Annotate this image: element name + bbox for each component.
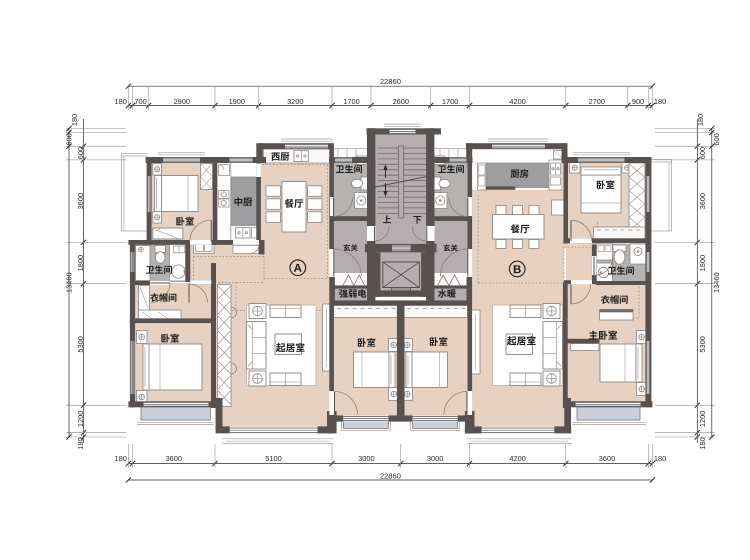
svg-text:5100: 5100 bbox=[265, 454, 281, 463]
svg-text:180: 180 bbox=[115, 97, 127, 106]
svg-text:600: 600 bbox=[76, 147, 85, 159]
svg-text:180: 180 bbox=[115, 454, 127, 463]
svg-text:180: 180 bbox=[654, 97, 666, 106]
svg-text:180: 180 bbox=[654, 454, 666, 463]
svg-text:180: 180 bbox=[696, 114, 705, 126]
svg-text:1900: 1900 bbox=[229, 97, 245, 106]
svg-text:22860: 22860 bbox=[380, 471, 401, 480]
svg-text:3600: 3600 bbox=[698, 193, 707, 209]
svg-text:3600: 3600 bbox=[166, 454, 182, 463]
svg-text:1700: 1700 bbox=[343, 97, 359, 106]
svg-text:1200: 1200 bbox=[698, 411, 707, 427]
svg-text:3200: 3200 bbox=[287, 97, 303, 106]
svg-text:3000: 3000 bbox=[427, 454, 443, 463]
svg-text:4200: 4200 bbox=[509, 454, 525, 463]
svg-text:180: 180 bbox=[70, 114, 79, 126]
svg-text:13460: 13460 bbox=[65, 272, 74, 293]
svg-text:600: 600 bbox=[65, 133, 74, 145]
svg-text:600: 600 bbox=[698, 147, 707, 159]
svg-text:700: 700 bbox=[134, 97, 146, 106]
svg-text:2700: 2700 bbox=[589, 97, 605, 106]
svg-text:3600: 3600 bbox=[599, 454, 615, 463]
svg-text:1700: 1700 bbox=[442, 97, 458, 106]
svg-text:1200: 1200 bbox=[76, 411, 85, 427]
svg-text:1800: 1800 bbox=[698, 255, 707, 271]
svg-text:3000: 3000 bbox=[358, 454, 374, 463]
svg-text:1800: 1800 bbox=[76, 255, 85, 271]
svg-text:900: 900 bbox=[632, 97, 644, 106]
svg-text:2900: 2900 bbox=[174, 97, 190, 106]
svg-text:22860: 22860 bbox=[380, 77, 401, 86]
svg-text:600: 600 bbox=[712, 133, 721, 145]
svg-text:180: 180 bbox=[76, 437, 85, 449]
svg-text:180: 180 bbox=[698, 437, 707, 449]
svg-text:5300: 5300 bbox=[76, 336, 85, 352]
svg-text:5300: 5300 bbox=[698, 336, 707, 352]
svg-text:3600: 3600 bbox=[76, 193, 85, 209]
svg-text:4200: 4200 bbox=[509, 97, 525, 106]
svg-text:13460: 13460 bbox=[712, 272, 721, 293]
svg-text:2600: 2600 bbox=[393, 97, 409, 106]
